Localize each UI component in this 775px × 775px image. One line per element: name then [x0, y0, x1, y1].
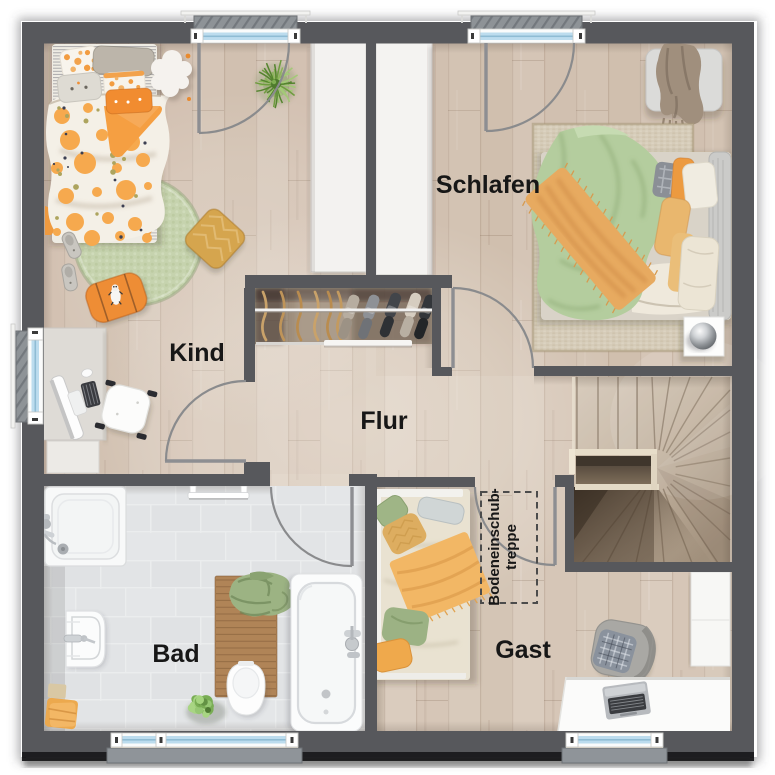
- svg-text:Schlafen: Schlafen: [436, 171, 540, 199]
- svg-text:Gast: Gast: [495, 636, 551, 664]
- svg-text:Kind: Kind: [169, 339, 225, 367]
- svg-text:Bodeneinschub-: Bodeneinschub-: [486, 488, 503, 606]
- svg-text:treppe: treppe: [503, 524, 520, 570]
- svg-text:Bad: Bad: [152, 640, 199, 668]
- svg-text:Flur: Flur: [360, 407, 407, 435]
